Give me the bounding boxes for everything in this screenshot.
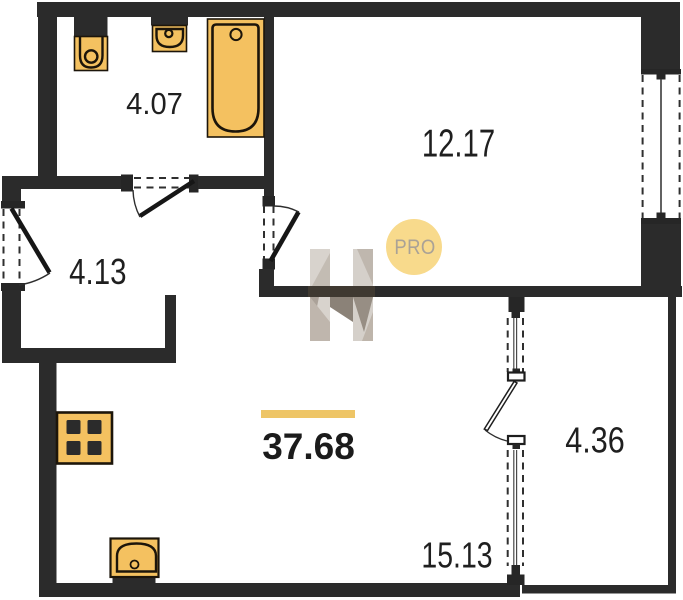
svg-text:4.36: 4.36: [565, 421, 625, 461]
svg-text:PRO: PRO: [394, 236, 435, 259]
svg-text:15.13: 15.13: [421, 535, 492, 575]
svg-text:37.68: 37.68: [262, 426, 355, 467]
svg-text:4.13: 4.13: [69, 251, 126, 291]
svg-text:12.17: 12.17: [422, 123, 495, 166]
svg-text:4.07: 4.07: [126, 87, 183, 121]
